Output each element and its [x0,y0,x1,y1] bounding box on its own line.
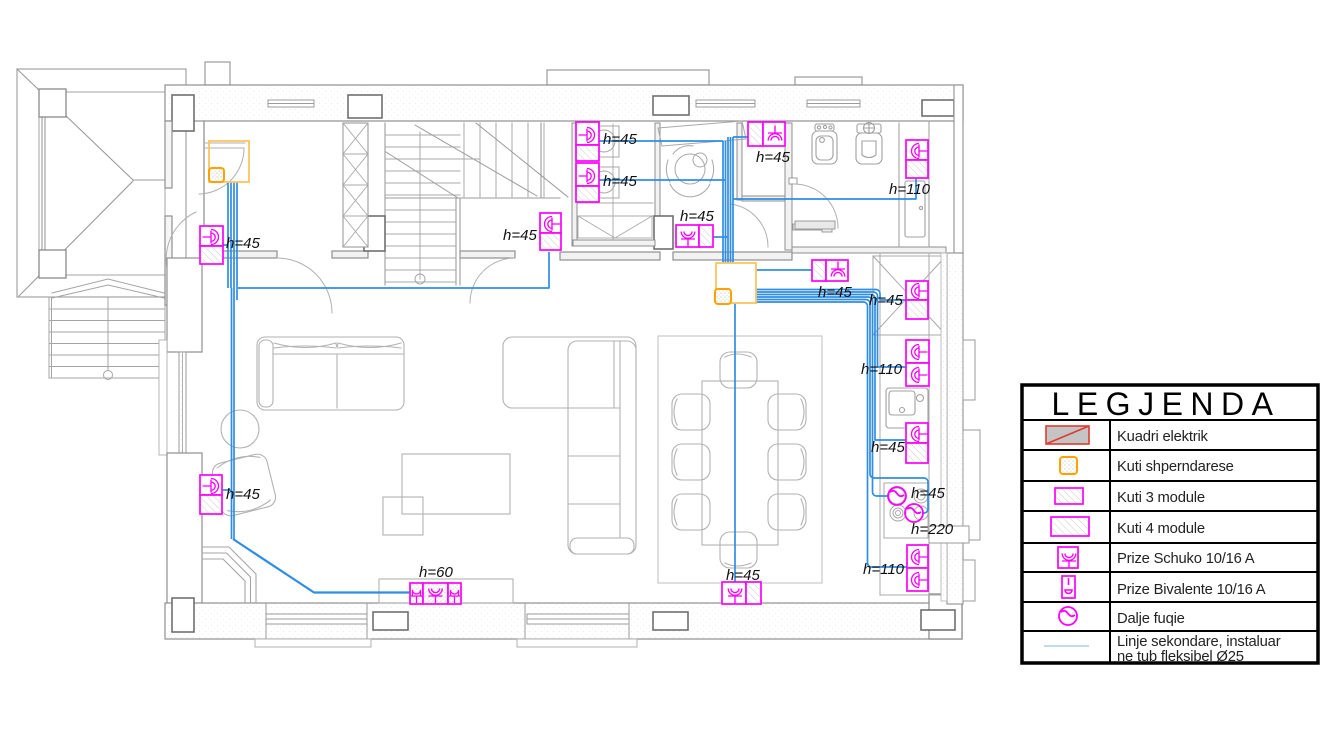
svg-text:Kuadri elektrik: Kuadri elektrik [1117,429,1209,445]
svg-text:h=45: h=45 [503,227,537,244]
svg-text:h=110: h=110 [889,181,931,198]
svg-text:h=45: h=45 [603,173,637,190]
svg-text:Prize Schuko 10/16 A: Prize Schuko 10/16 A [1117,551,1255,567]
svg-text:Dalje fuqie: Dalje fuqie [1117,611,1185,627]
svg-text:ne tub fleksibel Ø25: ne tub fleksibel Ø25 [1117,649,1244,665]
svg-text:h=45: h=45 [226,235,260,252]
svg-text:h=45: h=45 [680,208,714,225]
svg-text:Kuti 3 module: Kuti 3 module [1117,490,1205,506]
svg-text:Kuti 4 module: Kuti 4 module [1117,521,1205,537]
svg-text:h=220: h=220 [911,521,954,538]
svg-text:h=110: h=110 [861,361,903,378]
svg-text:h=60: h=60 [419,564,453,581]
svg-text:Kuti shperndarese: Kuti shperndarese [1117,459,1234,475]
svg-text:h=45: h=45 [911,485,945,502]
svg-text:h=45: h=45 [603,131,637,148]
svg-text:Prize Bivalente 10/16 A: Prize Bivalente 10/16 A [1117,582,1266,598]
svg-text:h=45: h=45 [756,149,790,166]
svg-text:h=45: h=45 [726,567,760,584]
svg-text:h=45: h=45 [226,486,260,503]
svg-text:LEGJENDA: LEGJENDA [1052,386,1281,422]
svg-text:h=110: h=110 [863,561,905,578]
svg-text:h=45: h=45 [871,439,905,456]
svg-text:h=45: h=45 [818,284,852,301]
svg-text:h=45: h=45 [869,292,903,309]
svg-text:Linje sekondare, instaluar: Linje sekondare, instaluar [1117,634,1281,650]
